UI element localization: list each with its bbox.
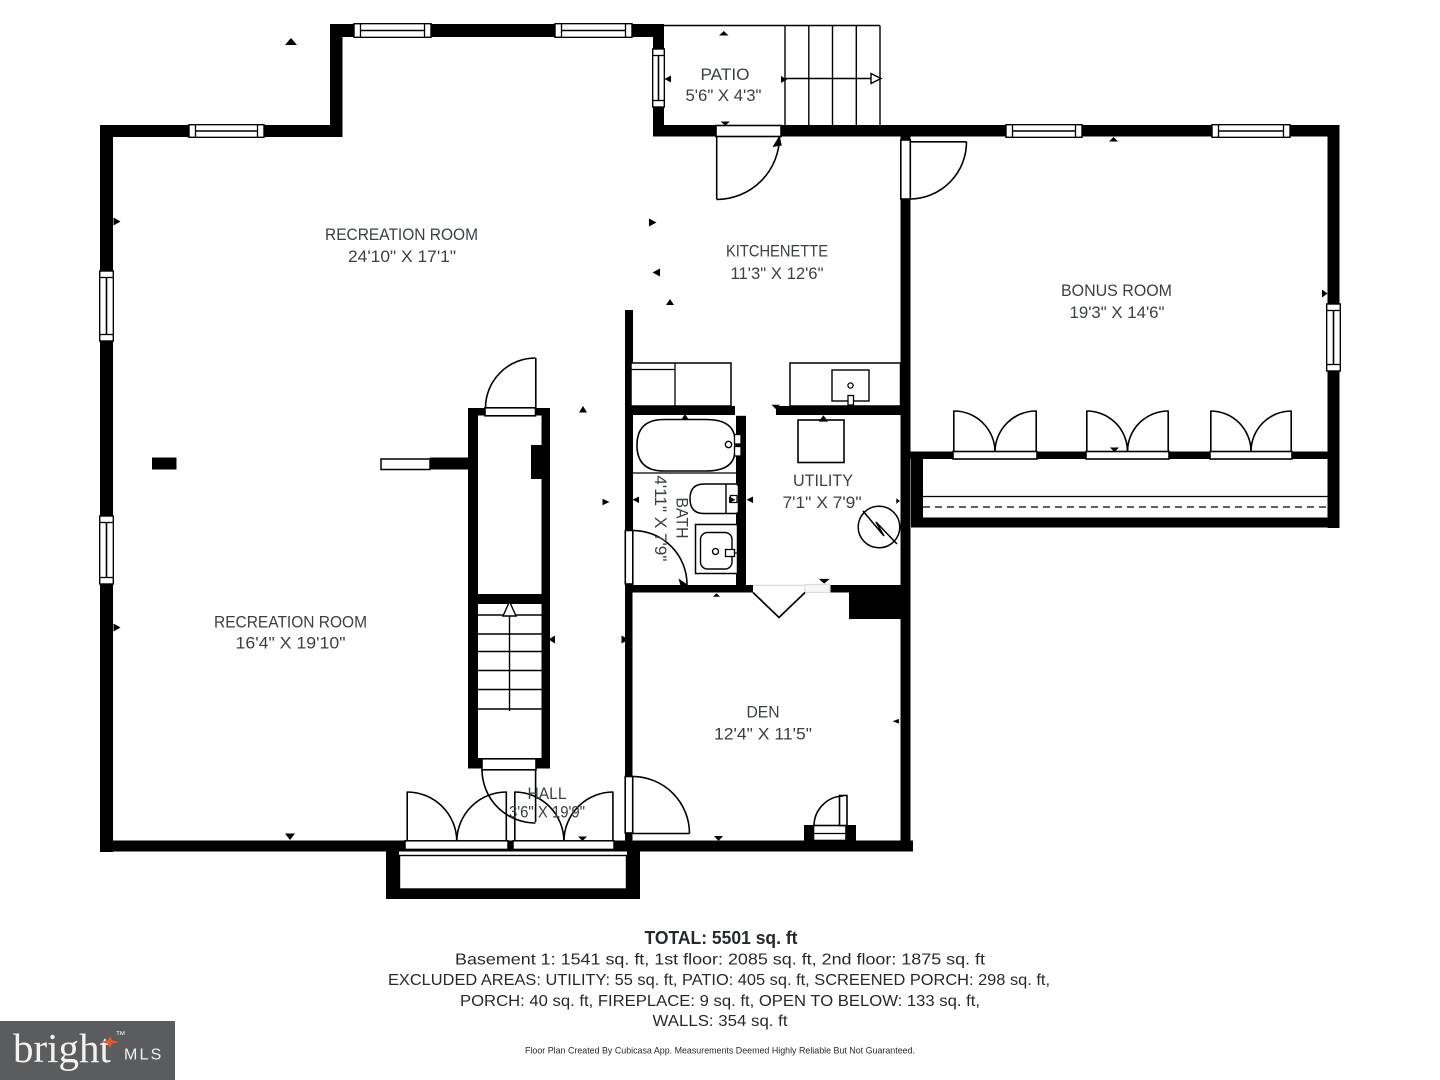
svg-text:24'10" X 17'1": 24'10" X 17'1"	[348, 247, 456, 266]
svg-text:5'6" X 4'3": 5'6" X 4'3"	[686, 86, 762, 105]
svg-text:7'1" X 7'9": 7'1" X 7'9"	[783, 493, 862, 512]
svg-text:BATH: BATH	[673, 498, 692, 539]
svg-text:UTILITY: UTILITY	[793, 471, 853, 490]
svg-text:TOTAL: 5501 sq. ft: TOTAL: 5501 sq. ft	[645, 927, 798, 948]
svg-text:BONUS ROOM: BONUS ROOM	[1061, 281, 1172, 300]
svg-text:WALLS: 354 sq. ft: WALLS: 354 sq. ft	[653, 1013, 789, 1030]
svg-text:KITCHENETTE: KITCHENETTE	[726, 242, 828, 261]
svg-text:™: ™	[116, 1030, 126, 1041]
svg-text:DEN: DEN	[747, 703, 780, 722]
svg-text:3'6" X 19'9": 3'6" X 19'9"	[509, 803, 585, 822]
svg-text:16'4" X 19'10": 16'4" X 19'10"	[236, 634, 346, 653]
svg-text:Floor Plan Created By Cubicasa: Floor Plan Created By Cubicasa App. Meas…	[525, 1046, 915, 1057]
svg-text:EXCLUDED AREAS: UTILITY: 55 sq: EXCLUDED AREAS: UTILITY: 55 sq. ft, PATI…	[388, 972, 1050, 989]
svg-text:RECREATION ROOM: RECREATION ROOM	[325, 225, 478, 244]
svg-text:19'3" X 14'6": 19'3" X 14'6"	[1070, 303, 1165, 322]
svg-text:RECREATION ROOM: RECREATION ROOM	[214, 613, 367, 632]
svg-text:HALL: HALL	[528, 784, 567, 803]
svg-text:4'11" X 7'9": 4'11" X 7'9"	[651, 475, 670, 561]
svg-text:MLS: MLS	[124, 1047, 164, 1064]
svg-text:12'4" X 11'5": 12'4" X 11'5"	[714, 725, 812, 744]
svg-text:Basement 1: 1541 sq. ft, 1st f: Basement 1: 1541 sq. ft, 1st floor: 2085…	[455, 952, 986, 969]
svg-text:PATIO: PATIO	[701, 65, 750, 84]
svg-text:PORCH: 40 sq. ft, FIREPLACE: 9: PORCH: 40 sq. ft, FIREPLACE: 9 sq. ft, O…	[460, 993, 980, 1010]
svg-text:bright: bright	[13, 1025, 112, 1071]
svg-text:11'3" X 12'6": 11'3" X 12'6"	[731, 264, 824, 283]
